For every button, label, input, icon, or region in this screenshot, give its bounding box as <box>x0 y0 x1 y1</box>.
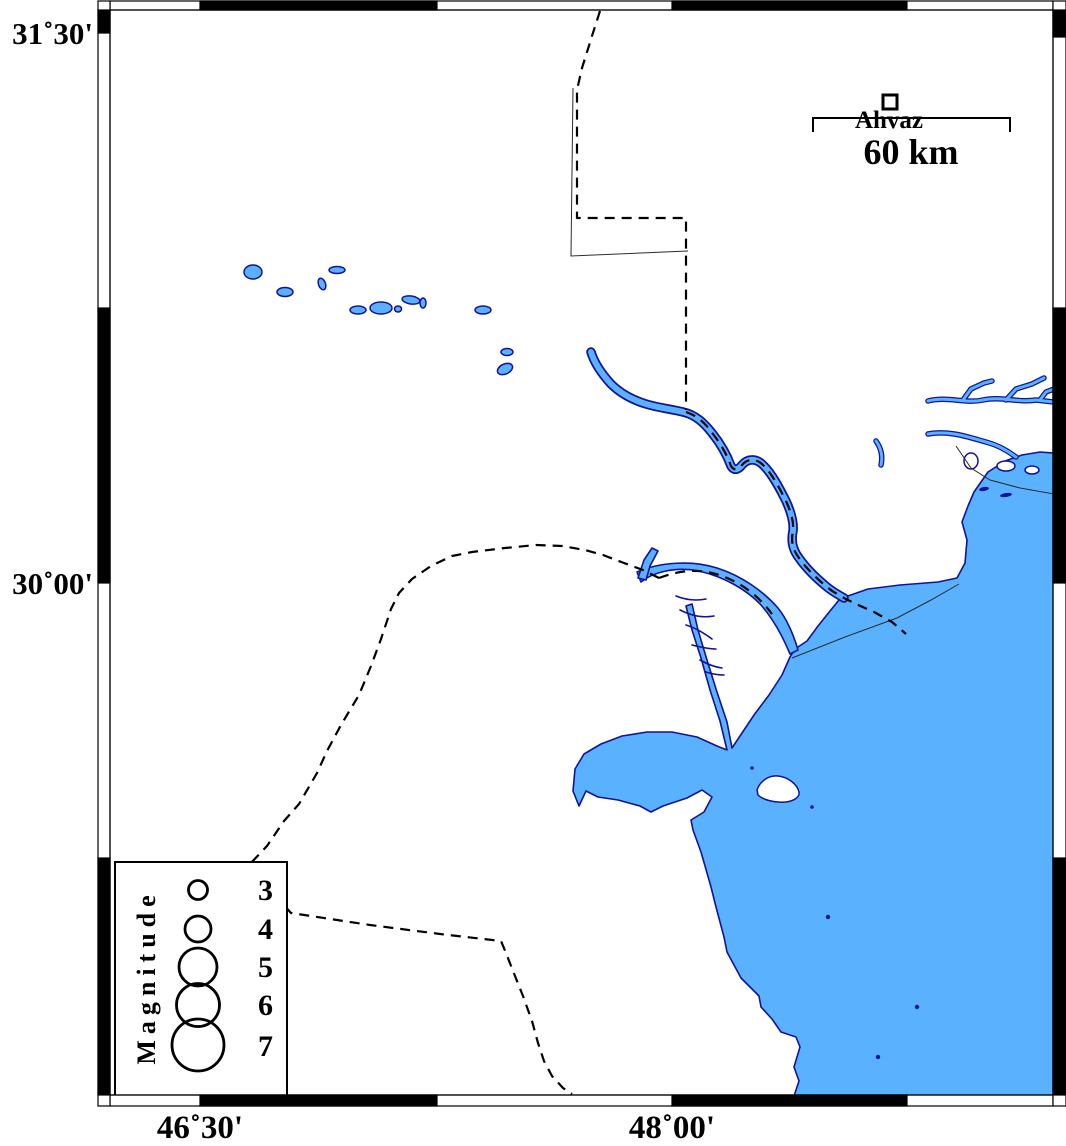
frame-corner <box>98 1095 110 1106</box>
gulf-islet-dot <box>810 805 814 809</box>
legend-label-7: 7 <box>258 1030 273 1063</box>
gulf-islet-dot <box>750 766 754 770</box>
gulf-islet-dot <box>826 915 830 919</box>
lat-label-30-00: 30˚00' <box>12 566 93 601</box>
lat-label-31-30: 31˚30' <box>12 16 93 51</box>
lon-label-48-00: 48˚00' <box>629 1110 715 1146</box>
frame-right-black-segment <box>1053 10 1066 37</box>
frame-right-black-segment <box>1053 308 1066 583</box>
legend-label-4: 4 <box>258 913 273 946</box>
scale-bar-label: 60 km <box>863 132 958 172</box>
frame-corner <box>1053 1 1066 10</box>
lon-label-46-30: 46˚30' <box>157 1110 243 1146</box>
khor-musa-island <box>1025 466 1039 474</box>
frame-left-black-segment <box>98 308 110 583</box>
legend-title: Magnitude <box>132 889 161 1064</box>
frame-left-black-segment <box>98 858 110 1095</box>
gulf-islet-dot <box>915 1005 919 1009</box>
frame-corner <box>1053 1095 1066 1106</box>
map-canvas: Ahvaz 60 km Magnitude 3 4 5 6 7 <box>0 0 1066 1146</box>
frame-top-black-segment <box>672 1 907 10</box>
frame-right-black-segment <box>1053 858 1066 1095</box>
legend-label-5: 5 <box>258 951 273 984</box>
frame-top-black-segment <box>200 1 437 10</box>
frame-bottom-black-segment <box>672 1095 907 1106</box>
legend-label-6: 6 <box>258 989 273 1022</box>
frame-left-black-segment <box>98 10 110 33</box>
frame-corner <box>98 1 110 10</box>
legend-label-3: 3 <box>258 874 273 907</box>
magnitude-legend: Magnitude 3 4 5 6 7 <box>115 862 287 1097</box>
khor-musa-island <box>997 461 1015 471</box>
city-label: Ahvaz <box>855 107 923 134</box>
frame-bottom-black-segment <box>200 1095 437 1106</box>
gulf-islet-dot <box>876 1055 880 1059</box>
